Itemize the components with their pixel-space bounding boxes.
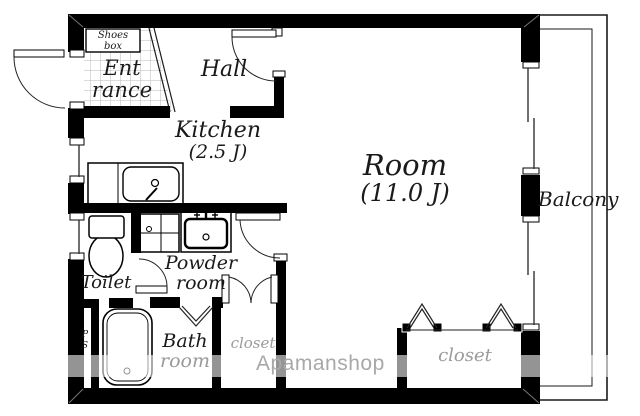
faucet-icon [152,180,159,187]
toilet-fixture [89,216,124,277]
washing-machine-pan [139,214,179,252]
washbasin [181,210,231,252]
room-label: Room (11.0 J) [328,150,482,206]
closet-small-label: closet [224,336,282,352]
closet-main-label: closet [428,346,502,365]
front-door [14,50,65,108]
balcony-label: Balcony [538,189,638,210]
bath-room-label: Bath room [154,331,216,371]
toilet-label: Toilet [74,273,138,292]
bath-folding-door [179,306,213,326]
kitchen-counter [88,163,183,205]
floorplan: Shoes box Ent rance Hall Kitchen (2.5 J)… [0,0,640,416]
powder-room-label: Powder room [158,253,244,293]
pipe-space-label: P S [77,330,93,352]
kitchen-label: Kitchen (2.5 J) [160,119,276,162]
room-closet-folding-doors [406,304,518,330]
entrance-label: Ent rance [82,57,162,102]
hall-label: Hall [186,58,262,81]
watermark-text: Apamanshop [256,352,396,376]
shoes-box-label: Shoes box [86,31,140,52]
